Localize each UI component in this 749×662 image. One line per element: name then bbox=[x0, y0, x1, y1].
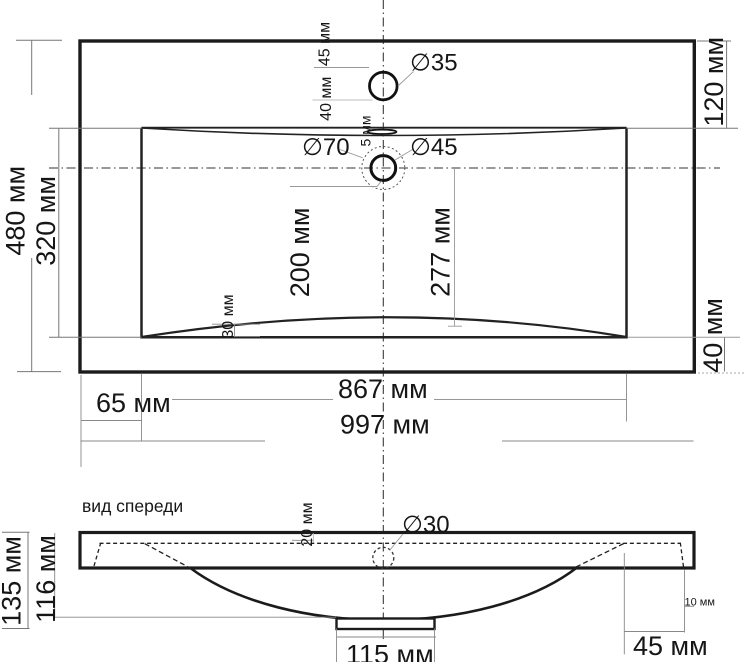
svg-text:∅70: ∅70 bbox=[302, 134, 350, 161]
svg-text:40 мм: 40 мм bbox=[318, 77, 335, 121]
svg-text:10 мм: 10 мм bbox=[685, 597, 715, 609]
svg-text:30 мм: 30 мм bbox=[220, 294, 237, 338]
svg-text:65 мм: 65 мм bbox=[96, 388, 171, 418]
svg-text:45 мм: 45 мм bbox=[633, 631, 708, 661]
svg-text:5 мм: 5 мм bbox=[358, 116, 374, 147]
svg-text:135 мм: 135 мм bbox=[0, 536, 27, 626]
svg-text:20 мм: 20 мм bbox=[299, 502, 316, 546]
svg-text:200 мм: 200 мм bbox=[285, 208, 315, 298]
svg-text:277 мм: 277 мм bbox=[426, 207, 456, 297]
svg-text:115 мм: 115 мм bbox=[346, 640, 434, 662]
svg-text:∅35: ∅35 bbox=[410, 50, 458, 77]
svg-text:45 мм: 45 мм bbox=[317, 22, 334, 66]
svg-text:997 мм: 997 мм bbox=[340, 410, 430, 440]
svg-text:320 мм: 320 мм bbox=[31, 176, 61, 266]
svg-text:480 мм: 480 мм bbox=[1, 166, 31, 256]
svg-text:116 мм: 116 мм bbox=[31, 535, 61, 623]
svg-text:867 мм: 867 мм bbox=[338, 374, 428, 404]
svg-text:120 мм: 120 мм bbox=[699, 37, 729, 127]
svg-text:40 мм: 40 мм bbox=[698, 298, 728, 373]
svg-text:∅30: ∅30 bbox=[402, 512, 450, 539]
svg-text:∅45: ∅45 bbox=[410, 134, 458, 161]
svg-text:вид спереди: вид спереди bbox=[82, 496, 183, 516]
